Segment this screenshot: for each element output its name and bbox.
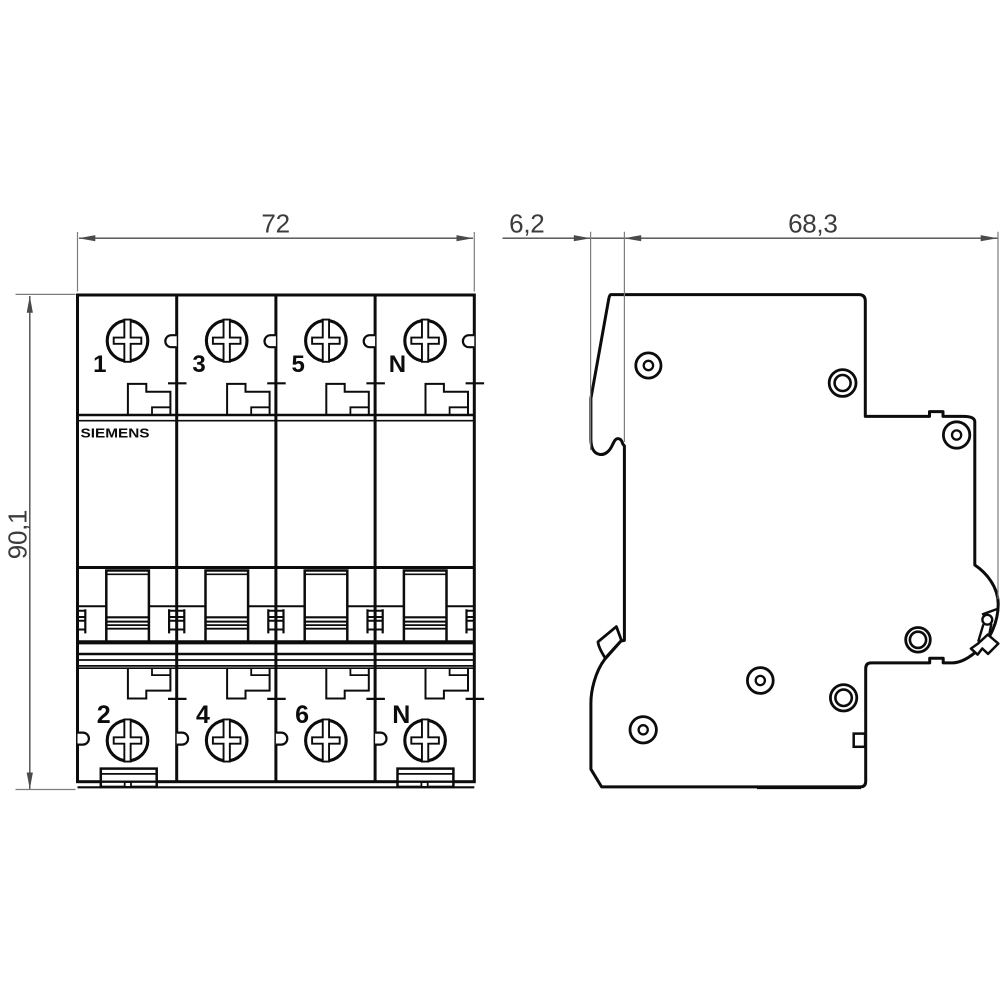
svg-text:72: 72 (261, 209, 289, 239)
svg-text:2: 2 (97, 701, 111, 729)
svg-text:5: 5 (292, 351, 305, 378)
svg-text:N: N (392, 701, 410, 729)
svg-text:N: N (389, 351, 406, 378)
svg-text:6,2: 6,2 (509, 209, 544, 239)
svg-text:6: 6 (295, 701, 309, 729)
svg-text:4: 4 (196, 701, 210, 729)
svg-text:3: 3 (192, 351, 205, 378)
svg-text:90,1: 90,1 (3, 510, 33, 559)
svg-text:SIEMENS: SIEMENS (81, 426, 150, 441)
svg-text:1: 1 (93, 351, 106, 378)
svg-text:68,3: 68,3 (788, 209, 837, 239)
